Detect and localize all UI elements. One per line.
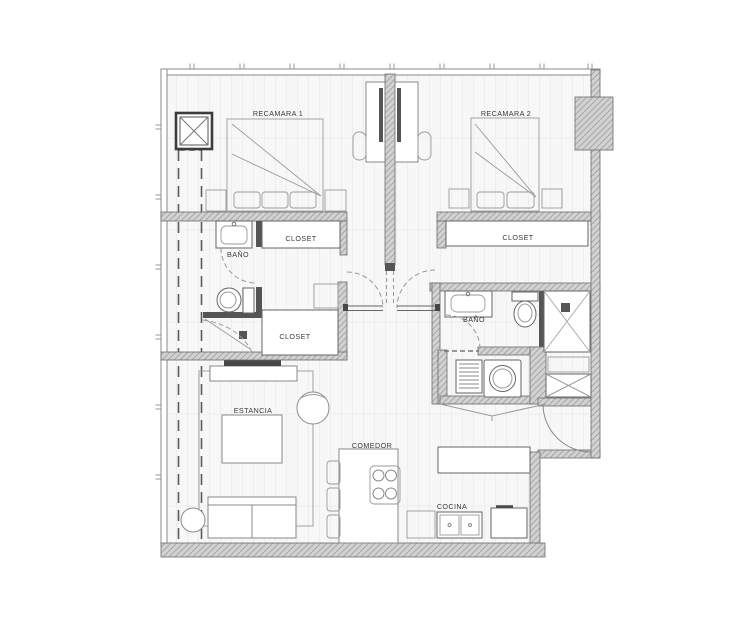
bath1-partition: [256, 221, 262, 247]
sink-icon: [216, 221, 252, 248]
sink-icon: [445, 291, 492, 317]
closet-r1-label: CLOSET: [285, 234, 316, 243]
closet-hall-label: CLOSET: [279, 332, 310, 341]
closet2-stub-wall: [437, 221, 446, 248]
door-hinge: [435, 304, 440, 311]
floor-plan: ESTANCIA RECAMARA 1 RECAMARA 2: [0, 0, 740, 620]
window-wall-top: [161, 69, 600, 75]
cocina-label: COCINA: [437, 502, 467, 511]
toilet-icon: [512, 292, 538, 327]
kitchen-sink-icon: [437, 512, 482, 538]
bedroom-divider-wall: [385, 74, 395, 265]
bottom-exterior-wall: [161, 543, 545, 557]
wall-below-recamara1: [161, 212, 347, 221]
bano-1-label: BAÑO: [227, 250, 249, 259]
coffee-table-icon: [222, 415, 282, 463]
sofa-icon: [208, 497, 296, 538]
closet-recamara-1: CLOSET: [262, 221, 340, 248]
mullion-ticks-left: [156, 125, 162, 479]
wall-cap: [385, 263, 395, 271]
closet-recamara-2: CLOSET: [446, 221, 588, 246]
drying-rack-icon: [456, 360, 482, 393]
tv-console-icon: [210, 366, 297, 381]
mullion-ticks-top: [190, 64, 592, 70]
armchair-icon: [297, 392, 329, 424]
closet1-stub-wall: [340, 221, 347, 255]
shower2-wall: [539, 291, 544, 352]
shower-icon: [544, 291, 590, 352]
dining-table-icon: [339, 449, 398, 543]
toilet-icon: [217, 288, 254, 313]
door-hinge: [343, 304, 348, 311]
recamara-2-label: RECAMARA 2: [481, 109, 531, 118]
kitchen-island-icon: [438, 447, 530, 473]
washer-icon: [484, 360, 521, 397]
kitchen-right-wall: [530, 452, 540, 546]
recamara-1-label: RECAMARA 1: [253, 109, 303, 118]
laundry-right-wall: [530, 347, 546, 404]
column-icon: [176, 113, 212, 149]
closet-r2-label: CLOSET: [502, 233, 533, 242]
column-top-right: [575, 97, 613, 150]
side-table-icon: [181, 508, 205, 532]
floor-plan-page: ESTANCIA RECAMARA 1 RECAMARA 2: [0, 0, 740, 620]
wall-below-recamara2: [437, 212, 600, 221]
bath2-top-wall: [430, 283, 600, 291]
window-wall-left: [161, 69, 167, 545]
hall-closet-right-wall: [338, 282, 347, 360]
bano-2-label: BAÑO: [463, 315, 485, 324]
fridge-icon: [491, 507, 527, 539]
tv-icon: [224, 360, 281, 366]
estancia-label: ESTANCIA: [234, 406, 273, 415]
